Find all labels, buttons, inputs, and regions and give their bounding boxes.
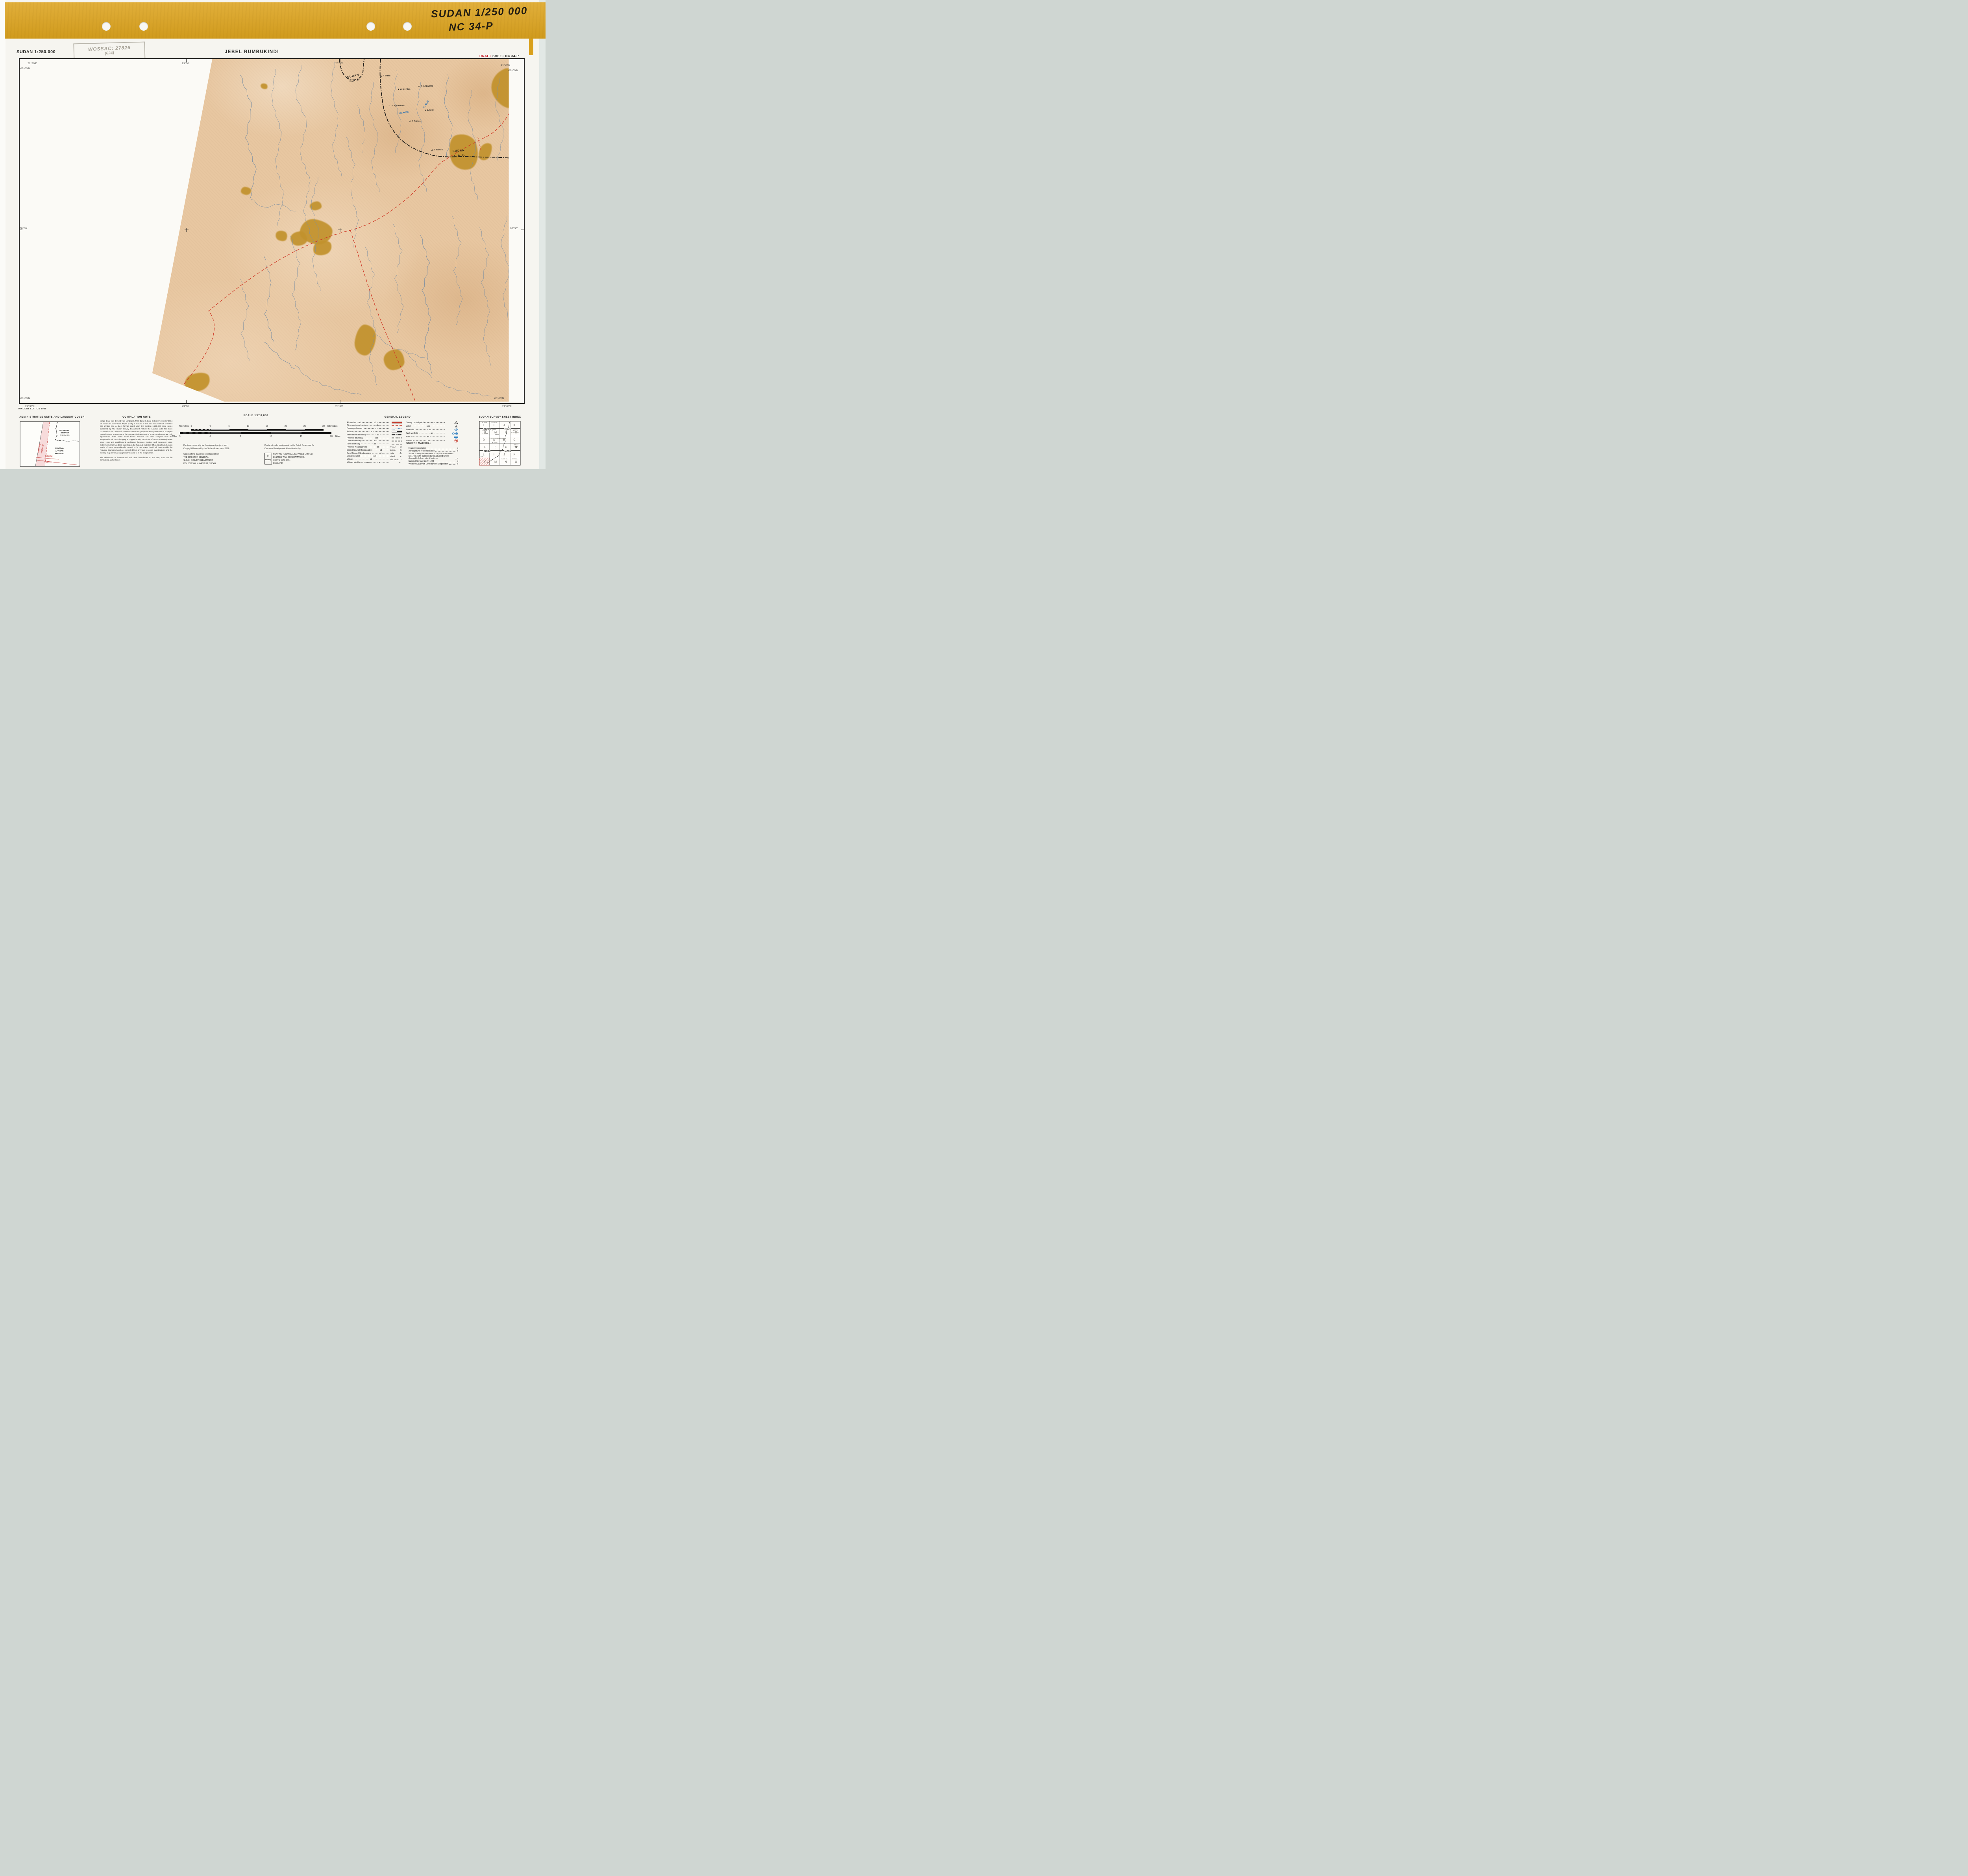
source-code: c (457, 457, 459, 460)
index-label: NORTH (513, 429, 518, 431)
source-label: Aerial/ground reconnaissance (409, 450, 435, 452)
publisher-line: Published especially for development pro… (183, 444, 229, 447)
index-label: M (494, 461, 497, 464)
legend-item-code: c (434, 422, 435, 424)
legend-item-code: a (371, 431, 372, 433)
sheet-index-grid: LIJKPMNODABCHEFGLIJKPMNOND34ND35NC34NC35… (479, 420, 523, 467)
legend-row: Village, identity not knowna (347, 461, 402, 464)
graticule-label: 08°30' (510, 227, 518, 230)
graticule-label: 08°30' (20, 227, 28, 230)
graticule-label: 09°00'N (509, 69, 518, 72)
miles-bar-extension (180, 432, 210, 434)
graticule-label: 08°00'N (494, 397, 504, 400)
legend-item-code: ac (377, 434, 379, 436)
series-title: SUDAN 1:250,000 (17, 50, 55, 54)
admin-label: DISTRICT (61, 432, 69, 434)
source-code: b (457, 450, 458, 452)
legend-item-code: acd (374, 440, 377, 442)
map-frame: △ J. Busu▲ J. Merijen▲ J. Angwawa▲ J. Aj… (19, 58, 525, 404)
publisher-line: Produced under assignment for the Britis… (264, 444, 314, 447)
open-triangle-icon: △ (431, 149, 433, 151)
source-material-row: Sudan Survey Department's 1:250,000 scal… (409, 453, 458, 460)
index-label: L (483, 424, 485, 427)
legend-item-label: Province boundary (347, 437, 363, 439)
scale-tick-label: 5 (229, 425, 230, 427)
graticule-label: 24°00'E (502, 405, 512, 408)
legend-item-label: International boundary (347, 434, 366, 436)
punch-hole (403, 22, 412, 31)
index-label: N (505, 461, 507, 464)
legend-item-label: Drainage channel (347, 427, 362, 430)
index-label: E (495, 446, 497, 449)
filled-triangle-icon: ▲ (389, 105, 391, 107)
km-bar-main (210, 429, 324, 431)
settlement-name: Sherif (390, 455, 395, 457)
legend-item-label: Well; wellfield (406, 432, 418, 435)
scale-unit-label: Kilometres (179, 425, 189, 427)
admin-label: RADOM R.C. (60, 434, 70, 436)
jebel-icon (446, 424, 458, 428)
scale-tick-label: 20 (330, 435, 333, 438)
scale-tick-label: 30 (322, 425, 325, 427)
settlement-name: NYALA (390, 446, 396, 448)
sheet-title: JEBEL RUMBUKINDI (189, 50, 315, 54)
scale-bar: 5051015202530KilometresKilometres5051015… (157, 424, 346, 442)
index-label: O (515, 461, 517, 464)
legend-item-code: a (375, 427, 376, 430)
legend-item-code: ab (376, 424, 379, 427)
publisher-line: THE DIRECTOR GENERAL, (183, 456, 219, 459)
index-label: J (503, 453, 505, 456)
source-material-row: Aerial/ground reconnaissanceb (409, 450, 458, 452)
map-sheet-page: SUDAN 1/250 000 NC 34-P SUDAN 1:250,000 … (0, 0, 546, 469)
settlement-name: Abu Hamid (390, 459, 399, 461)
admin-label: ROW 54 (45, 455, 52, 458)
borehole-icon (446, 428, 458, 431)
scanner-edge-left (0, 0, 6, 469)
sheet-index-title: SUDAN SURVEY SHEET INDEX (476, 416, 523, 418)
well-icon (446, 432, 458, 435)
company-address: HUNTING TECHNICAL SERVICES LIMITED,ELSTR… (273, 453, 313, 465)
punch-hole (366, 22, 375, 31)
admin-label: ROW 55 (44, 461, 52, 463)
index-label: Nyertete (492, 429, 496, 431)
graticule-label: 23°30' (335, 405, 343, 408)
index-label: NORTH (482, 422, 487, 424)
index-label: I (494, 424, 494, 427)
legend-item-code: ab (374, 422, 376, 424)
jebel-label: △ J. Kalala (409, 120, 421, 122)
publisher-line: ELSTREE WAY, BOREHAMWOOD, (273, 456, 313, 459)
publisher-line: ENGLAND. (273, 462, 313, 465)
filled-triangle-icon: ▲ (418, 85, 420, 87)
drainage-network (20, 59, 525, 405)
publisher-note: Published especially for development pro… (183, 444, 229, 450)
legend-item-code: ae (431, 432, 433, 435)
legend-item-code: ad (379, 452, 381, 455)
airfield-icon (446, 439, 458, 442)
index-label: Idd el Ghanam (491, 438, 499, 440)
produced-under-note: Produced under assignment for the Britis… (264, 444, 314, 450)
jebel-ochre-patch (512, 104, 527, 124)
index-label: K'FAN (514, 446, 518, 447)
legend-item-label: District Council Headquarters (347, 449, 372, 451)
filled-triangle-icon: ▲ (398, 88, 400, 91)
village_unknown-icon (390, 461, 402, 464)
index-label: P (485, 461, 486, 464)
source-material-row: Western Savannah Development Corporation… (409, 463, 458, 465)
scale-unit-label: Kilometres (327, 425, 337, 427)
source-label: Western Savannah Development Corporation (409, 463, 448, 465)
legend-item-label: Village, identity not known (347, 461, 370, 464)
legend-item-label: Survey control point (406, 422, 424, 424)
binder-note-line2: NC 34-P (448, 20, 494, 33)
legend-row: Airfieldab (406, 439, 458, 442)
index-label: C (513, 439, 515, 442)
admin-label: REPUBLIC (55, 453, 64, 455)
graticule-label: 23°00' (182, 62, 190, 65)
track-route-red (181, 96, 515, 388)
graticule-label: 08°00'N (20, 397, 30, 400)
legend-item-code: abc (427, 425, 430, 427)
hunting-logo: ⑅ Hunting (264, 453, 272, 464)
index-label: GHAZAL (512, 458, 518, 460)
hunting-bird-icon: ⑅ (265, 453, 272, 459)
settlement-name: Buram (390, 449, 396, 451)
legend-item-label: Village Council (347, 455, 360, 457)
graticule-label: 22°30'E (25, 405, 35, 408)
index-label: H (484, 446, 486, 449)
index-label: B (503, 439, 505, 442)
legend-item-label: District boundary (347, 440, 362, 442)
draft-sheet-label: DRAFT SHEET NC 34-P (479, 54, 519, 58)
legend-item-label: Hafir (406, 436, 411, 438)
scale-tick-label: 10 (247, 425, 249, 427)
publisher-line: Copyright Reserved by the Sudan Governme… (183, 447, 229, 450)
scanner-edge (539, 0, 546, 469)
compilation-paragraph: The delineation of international and oth… (100, 457, 172, 462)
landsat-imagery (20, 59, 524, 403)
scale-tick-label: 0 (210, 425, 211, 427)
settlement-name: Adila (390, 452, 394, 454)
legend-item-label: All weather road (347, 422, 361, 424)
binder-tab (529, 39, 533, 55)
graticule-label: 09°00'N (20, 67, 30, 70)
jebel-label: ▲ J. Angwawa (418, 85, 433, 87)
open-triangle-icon: △ (409, 120, 411, 122)
index-label: J (503, 424, 505, 427)
survey_point-icon (446, 421, 458, 424)
imagery-edition: IMAGERY EDITION 1986 (18, 408, 46, 410)
index-label: D (483, 439, 485, 442)
filled-triangle-icon: ▲ (424, 109, 426, 111)
index-label: F (505, 446, 507, 449)
legend-item-code: ae (427, 436, 429, 438)
publisher-line: Overseas Development Administration by (264, 447, 314, 450)
jebel-label: ▲ J. Merijen (398, 88, 411, 91)
hunting-logo-text: Hunting (265, 459, 272, 461)
scale-unit-label: Miles (335, 435, 340, 438)
publisher-line: Copies of this map may be obtained from (183, 453, 219, 456)
source-material-title: SOURCE MATERIAL (406, 442, 431, 445)
publisher-line: SUDAN SURVEY DEPARTMENT, (183, 459, 219, 462)
binder-note-line1: SUDAN 1/250 000 (431, 5, 528, 20)
open-triangle-icon: △ (380, 75, 382, 77)
punch-hole (102, 22, 111, 31)
source-label: National Census Study, 1983 (409, 460, 434, 463)
scale-tick-label: 25 (303, 425, 306, 427)
index-label: NC35 (505, 450, 511, 453)
index-label: K (514, 424, 516, 427)
publisher-line: HUNTING TECHNICAL SERVICES LIMITED, (273, 453, 313, 456)
legend-item-code: ad (377, 446, 379, 448)
legend-row: Jebelabc (406, 424, 458, 428)
legend-item-label: Borehole (406, 429, 414, 431)
miles-bar-main (210, 432, 331, 434)
jebel-label: ▲ J. Ajarbacha (389, 105, 405, 107)
index-label: BAHR EL (501, 458, 507, 460)
draft-word: DRAFT (479, 54, 491, 58)
legend-item-code: a (379, 461, 380, 464)
legend-row: Hafirae (406, 435, 458, 439)
legend-item-code: ad (374, 455, 376, 457)
admin-panel-title: ADMINISTRATIVE UNITS AND LANDSAT COVER (19, 416, 85, 418)
source-code: a (457, 447, 458, 450)
legend-row: Survey control pointc (406, 421, 458, 424)
scale-tick-label: 20 (285, 425, 287, 427)
km-bar-extension (191, 429, 210, 431)
admin-label: AFRICAN (55, 450, 64, 452)
punch-hole (139, 22, 148, 31)
legend-item-label: Airfield (406, 440, 412, 442)
legend-item-label: Village (347, 458, 353, 461)
graticule-label: 24°00'E (501, 64, 510, 67)
scale-tick-label: 0 (210, 435, 211, 438)
index-label: I (494, 453, 494, 456)
scale-tick-label: 5 (240, 435, 241, 438)
legend-item-label: Railway (347, 431, 354, 433)
legend-item-code: ab (428, 440, 430, 442)
graticule-label: 22°30'E (28, 62, 37, 65)
admin-label: SOUTHERN (59, 429, 69, 431)
index-label: C.A.R. (479, 456, 484, 457)
scale-tick-label: 10 (270, 435, 272, 438)
hafir-icon (446, 435, 458, 439)
sheet-word: SHEET NC 34-P (492, 54, 519, 58)
jebel-label: △ J. Hamid (431, 149, 443, 151)
legend-item-label: Province Headquarters (347, 446, 367, 448)
legend-title: GENERAL LEGEND (366, 416, 429, 418)
scale-tick-label: 5 (179, 435, 181, 438)
legend-item-label: Rural boundary (347, 443, 360, 445)
graticule-label: 23°30' (335, 62, 343, 65)
index-label: Garsila (484, 433, 488, 434)
legend-item-label: Jebel (406, 425, 411, 427)
index-label: NC34 (484, 450, 490, 453)
legend-item-code: ad (370, 458, 372, 461)
index-label: Zalingei (483, 429, 487, 431)
index-label: SOUTH (514, 444, 519, 445)
source-material-row: Image interpretationa (409, 447, 458, 450)
legend-item-label: Other routes or tracks (347, 424, 366, 427)
admin-label: CENTRAL (55, 447, 64, 449)
admin-units-diagram: SOUTHERNDISTRICTRADOM R.C.CENTRALAFRICAN… (20, 421, 80, 468)
binder-strip: SUDAN 1/250 000 NC 34-P (5, 2, 546, 39)
source-code: e (457, 463, 458, 465)
graticule-label: 23°00' (182, 405, 190, 408)
legend-item-code: ad (374, 443, 376, 445)
source-label: Sudan Survey Department's 1:250,000 scal… (409, 453, 454, 460)
index-label: Nyala (496, 434, 499, 435)
legend-item-code: ad (380, 449, 382, 451)
legend-item-label: Rural Council Headquarters (347, 452, 371, 455)
scale-tick-label: 5 (191, 425, 192, 427)
legend-row: Boreholeae (406, 428, 458, 431)
source-label: Image interpretation (409, 447, 426, 450)
jebel-label: △ J. Busu (380, 75, 390, 77)
index-label: DARFUR (492, 422, 498, 424)
obtain-from-note: Copies of this map may be obtained fromT… (183, 453, 219, 465)
index-label: Ed Da'ein (500, 438, 506, 439)
index-label: K (514, 453, 516, 456)
scale-tick-label: 15 (300, 435, 302, 438)
scale-unit-label: Miles (172, 435, 177, 438)
legend-item-code: ae (429, 429, 431, 431)
index-label: KORDOFAN (511, 432, 520, 433)
index-label: Buram (494, 442, 498, 444)
source-code: d (457, 460, 458, 463)
scale-tick-label: 15 (266, 425, 268, 427)
scale-title: SCALE 1:250,000 (213, 414, 299, 417)
legend-item-code: acd (375, 437, 378, 439)
jebel-label: ▲ J. Nibi (424, 109, 434, 111)
source-material-row: National Census Study, 1983d (409, 460, 458, 463)
publisher-line: P.O. BOX 306, KHARTOUM, SUDAN. (183, 462, 219, 465)
publisher-line: HERTS, WD6 1SB., (273, 459, 313, 463)
compilation-title: COMPILATION NOTE (99, 416, 174, 418)
legend-row: Well; wellfieldae (406, 432, 458, 435)
